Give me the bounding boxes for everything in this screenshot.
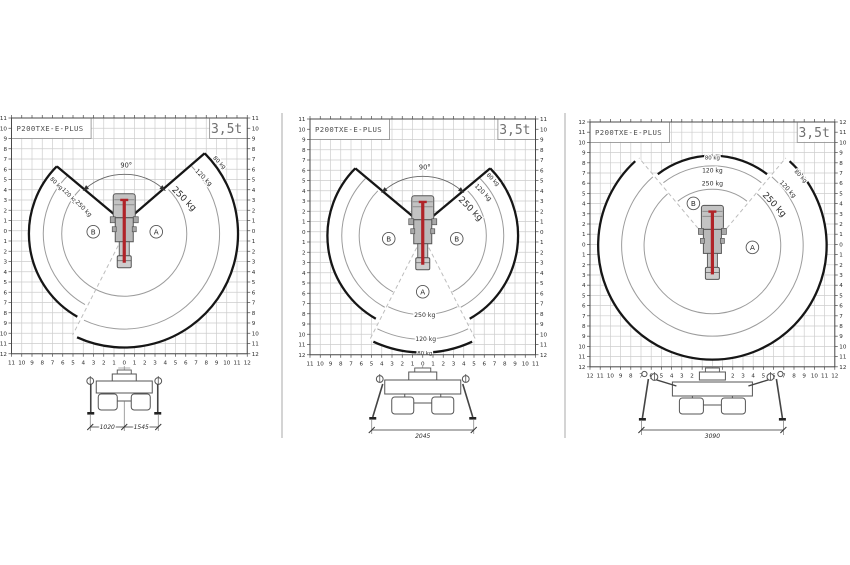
y-axis-tick-label-left: 6	[582, 304, 586, 310]
wheel	[392, 397, 414, 414]
x-axis-tick-label: 4	[163, 360, 167, 366]
y-axis-tick-label-right: 6	[252, 167, 256, 173]
y-axis-tick-label-right: 7	[540, 158, 544, 164]
y-axis-tick-label-left: 5	[3, 280, 7, 286]
y-axis-tick-label-left: 6	[302, 291, 306, 297]
y-axis-tick-label-right: 8	[540, 148, 544, 154]
y-axis-tick-label-left: 0	[582, 242, 586, 248]
x-axis-tick-label: 10	[522, 361, 530, 367]
y-axis-tick-label-left: 5	[302, 281, 306, 287]
y-axis-tick-label-left: 1	[582, 232, 586, 238]
x-axis-tick-label: 5	[660, 373, 664, 379]
zone-letter: A	[420, 287, 425, 296]
weight-badge: 3,5t	[798, 126, 829, 141]
y-axis-tick-label-right: 6	[839, 304, 843, 310]
dimension-label: 1020	[100, 424, 115, 431]
y-axis-tick-label-left: 7	[3, 157, 7, 163]
y-axis-tick-label-left: 4	[302, 271, 306, 277]
capacity-label: 120 kg	[415, 336, 436, 343]
wheel	[679, 398, 703, 414]
y-axis-tick-label-right: 6	[540, 291, 544, 297]
y-axis-tick-label-right: 1	[839, 253, 843, 259]
dimension-label: 1545	[134, 424, 149, 431]
y-axis-tick-label-right: 2	[252, 249, 256, 255]
x-axis-tick-label: 5	[370, 361, 374, 367]
y-axis-tick-label-right: 2	[540, 209, 544, 215]
zone-letter: A	[154, 227, 159, 236]
y-axis-tick-label-right: 3	[839, 212, 843, 218]
capacity-label: 80 kg	[417, 351, 432, 357]
x-axis-tick-label: 12	[244, 360, 251, 366]
y-axis-tick-label-left: 1	[302, 240, 306, 246]
y-axis-tick-label-right: 4	[252, 188, 256, 194]
outrigger-dimension: 3090	[638, 420, 786, 440]
x-axis-tick-label: 10	[607, 373, 615, 379]
y-axis-tick-label-left: 10	[0, 126, 7, 132]
slew-angle-label: 90°	[419, 163, 431, 171]
y-axis-tick-label-right: 10	[252, 331, 260, 337]
chart-title: P200TXE-E-PLUS	[595, 128, 662, 137]
y-axis-tick-label-right: 12	[839, 365, 846, 371]
x-axis-tick-label: 6	[359, 361, 363, 367]
y-axis-tick-label-right: 3	[540, 261, 544, 267]
x-axis-tick-label: 6	[61, 360, 65, 366]
x-axis-tick-label: 2	[400, 361, 404, 367]
y-axis-tick-label-right: 8	[839, 161, 843, 167]
wheel	[98, 394, 117, 410]
x-axis-tick-label: 3	[452, 361, 456, 367]
outrigger-dimension: 2045	[369, 419, 477, 440]
x-axis-tick-label: 6	[482, 361, 486, 367]
y-axis-tick-label-left: 2	[3, 249, 7, 255]
x-axis-tick-label: 2	[441, 361, 445, 367]
y-axis-tick-label-right: 5	[839, 191, 843, 197]
y-axis-tick-label-right: 7	[252, 157, 256, 163]
y-axis-tick-label-right: 8	[252, 147, 256, 153]
y-axis-tick-label-right: 2	[839, 222, 843, 228]
chart-title: P200TXE-E-PLUS	[315, 125, 382, 134]
x-axis-tick-label: 5	[71, 360, 75, 366]
y-axis-tick-label-left: 3	[3, 260, 7, 266]
y-axis-tick-label-right: 2	[252, 208, 256, 214]
y-axis-tick-label-left: 4	[3, 188, 7, 194]
y-axis-tick-label-left: 9	[3, 321, 7, 327]
chart-title: P200TXE-E-PLUS	[17, 124, 84, 133]
weight-badge: 3,5t	[211, 122, 242, 137]
x-axis-tick-label: 4	[462, 361, 466, 367]
y-axis-tick-label-right: 8	[540, 312, 544, 318]
x-axis-tick-label: 11	[597, 373, 605, 379]
x-axis-tick-label: 3	[153, 360, 157, 366]
y-axis-tick-label-right: 8	[839, 324, 843, 330]
x-axis-tick-label: 4	[380, 361, 384, 367]
y-axis-tick-label-left: 9	[302, 322, 306, 328]
y-axis-tick-label-right: 11	[839, 355, 847, 361]
x-axis-tick-label: 9	[215, 360, 219, 366]
x-axis-tick-label: 4	[670, 373, 674, 379]
y-axis-tick-label-right: 5	[252, 280, 256, 286]
y-axis-tick-label-right: 11	[839, 130, 847, 136]
x-axis-tick-label: 5	[174, 360, 178, 366]
y-axis-tick-label-right: 0	[252, 229, 256, 235]
y-axis-tick-label-right: 3	[252, 260, 256, 266]
y-axis-tick-label-left: 10	[298, 332, 306, 338]
y-axis-tick-label-right: 1	[839, 232, 843, 238]
y-axis-tick-label-right: 3	[839, 273, 843, 279]
y-axis-tick-label-left: 11	[0, 116, 7, 122]
y-axis-tick-label-left: 8	[302, 312, 306, 318]
x-axis-tick-label: 10	[317, 361, 325, 367]
y-axis-tick-label-left: 6	[582, 181, 586, 187]
zone-letter: B	[386, 234, 391, 243]
capacity-label: 80 kg	[705, 155, 720, 161]
capacity-label: 120 kg	[702, 167, 723, 174]
y-axis-tick-label-left: 2	[582, 263, 586, 269]
y-axis-tick-label-left: 10	[578, 344, 586, 350]
outreach-diagram-1: 90°80 kg120 kg250 kg80 kg120 kg250 kgBAP…	[0, 0, 283, 565]
x-axis-tick-label: 8	[792, 373, 796, 379]
y-axis-tick-label-left: 11	[0, 342, 7, 348]
y-axis-tick-label-right: 11	[540, 343, 548, 349]
y-axis-tick-label-left: 0	[302, 230, 306, 236]
load-charts-board: 90°80 kg120 kg250 kg80 kg120 kg250 kgBAP…	[0, 0, 850, 565]
y-axis-tick-label-left: 5	[582, 293, 586, 299]
x-axis-tick-label: 7	[493, 361, 497, 367]
y-axis-tick-label-right: 12	[839, 120, 846, 126]
x-axis-tick-label: 10	[223, 360, 231, 366]
y-axis-tick-label-right: 6	[252, 290, 256, 296]
y-axis-tick-label-left: 12	[298, 353, 305, 359]
x-axis-tick-label: 7	[194, 360, 198, 366]
y-axis-tick-label-right: 4	[540, 189, 544, 195]
y-axis-tick-label-right: 0	[540, 230, 544, 236]
y-axis-tick-label-left: 10	[578, 140, 586, 146]
machine-front-view	[369, 366, 476, 420]
y-axis-tick-label-right: 9	[540, 138, 544, 144]
y-axis-tick-label-left: 12	[578, 365, 585, 371]
machine-boom	[421, 203, 424, 265]
y-axis-tick-label-left: 9	[582, 334, 586, 340]
y-axis-tick-label-right: 10	[252, 126, 260, 132]
x-axis-tick-label: 2	[143, 360, 147, 366]
y-axis-tick-label-left: 10	[0, 331, 7, 337]
y-axis-tick-label-left: 12	[0, 352, 7, 358]
y-axis-tick-label-right: 11	[252, 116, 260, 122]
y-axis-tick-label-right: 4	[839, 283, 843, 289]
x-axis-tick-label: 12	[831, 373, 838, 379]
outrigger-leg	[776, 379, 782, 418]
x-axis-tick-label: 2	[731, 373, 735, 379]
y-axis-tick-label-left: 2	[3, 208, 7, 214]
y-axis-tick-label-right: 3	[540, 199, 544, 205]
y-axis-tick-label-left: 11	[578, 355, 586, 361]
x-axis-tick-label: 7	[349, 361, 353, 367]
y-axis-tick-label-right: 2	[839, 263, 843, 269]
y-axis-tick-label-right: 5	[540, 281, 544, 287]
x-axis-tick-label: 4	[751, 373, 755, 379]
y-axis-tick-label-left: 4	[582, 202, 586, 208]
x-axis-tick-label: 6	[184, 360, 188, 366]
y-axis-tick-label-right: 4	[540, 271, 544, 277]
x-axis-tick-label: 2	[690, 373, 694, 379]
x-axis-tick-label: 5	[762, 373, 766, 379]
y-axis-tick-label-right: 9	[540, 322, 544, 328]
y-axis-tick-label-right: 5	[839, 293, 843, 299]
y-axis-tick-label-left: 7	[302, 302, 306, 308]
y-axis-tick-label-left: 5	[582, 191, 586, 197]
y-axis-tick-label-right: 4	[252, 270, 256, 276]
y-axis-tick-label-left: 2	[582, 222, 586, 228]
y-axis-tick-label-left: 4	[3, 270, 7, 276]
y-axis-tick-label-right: 10	[839, 140, 847, 146]
x-axis-tick-label: 2	[102, 360, 106, 366]
machine-boom	[711, 212, 714, 274]
x-axis-tick-label: 8	[204, 360, 208, 366]
x-axis-tick-label: 11	[8, 360, 16, 366]
x-axis-tick-label: 11	[306, 361, 314, 367]
capacity-labels-horizontal: 80 kg120 kg250 kg	[702, 155, 723, 187]
y-axis-tick-label-right: 7	[839, 314, 843, 320]
y-axis-tick-label-left: 1	[3, 219, 7, 225]
y-axis-tick-label-right: 10	[540, 127, 548, 133]
outrigger-leg	[642, 379, 648, 418]
y-axis-tick-label-right: 7	[540, 302, 544, 308]
y-axis-tick-label-left: 11	[298, 117, 306, 123]
x-axis-tick-label: 1	[411, 361, 415, 367]
zone-letter: B	[691, 199, 696, 208]
y-axis-tick-label-left: 2	[302, 209, 306, 215]
x-axis-tick-label: 9	[802, 373, 806, 379]
x-axis-tick-label: 7	[51, 360, 55, 366]
y-axis-tick-label-right: 6	[839, 181, 843, 187]
x-axis-tick-label: 11	[821, 373, 829, 379]
y-axis-tick-label-left: 2	[302, 250, 306, 256]
outrigger-leg	[463, 384, 473, 417]
y-axis-tick-label-right: 8	[252, 311, 256, 317]
zone-letter: B	[454, 234, 459, 243]
outreach-diagram-2: 90°80 kg120 kg250 kg250 kg120 kg80 kgBBA…	[283, 0, 566, 565]
wheel	[721, 398, 745, 414]
load-chart-panel-3: 80 kg120 kg250 kg80 kg120 kg250 kgBAP200…	[566, 0, 850, 565]
y-axis-tick-label-right: 5	[540, 179, 544, 185]
y-axis-tick-label-left: 8	[582, 161, 586, 167]
x-axis-tick-label: 1	[133, 360, 137, 366]
x-axis-tick-label: 3	[92, 360, 96, 366]
y-axis-tick-label-right: 10	[540, 332, 548, 338]
y-axis-tick-label-left: 9	[302, 138, 306, 144]
x-axis-tick-label: 9	[30, 360, 34, 366]
y-axis-tick-label-left: 3	[582, 273, 586, 279]
y-axis-tick-label-right: 1	[540, 220, 544, 226]
slew-angle-label: 90°	[120, 161, 132, 169]
outrigger-leg	[373, 384, 383, 417]
x-axis-tick-label: 8	[629, 373, 633, 379]
y-axis-tick-label-right: 12	[252, 352, 259, 358]
y-axis-tick-label-left: 10	[298, 127, 306, 133]
y-axis-tick-label-right: 9	[839, 334, 843, 340]
y-axis-tick-label-left: 6	[302, 168, 306, 174]
y-axis-tick-label-left: 5	[302, 179, 306, 185]
x-axis-tick-label: 10	[811, 373, 819, 379]
y-axis-tick-label-left: 6	[3, 167, 7, 173]
y-axis-tick-label-left: 1	[582, 253, 586, 259]
y-axis-tick-label-right: 12	[540, 353, 547, 359]
x-axis-tick-label: 11	[532, 361, 540, 367]
y-axis-tick-label-right: 7	[839, 171, 843, 177]
y-axis-tick-label-right: 11	[252, 342, 260, 348]
dimension-label: 2045	[415, 433, 430, 440]
y-axis-tick-label-right: 6	[540, 168, 544, 174]
wheel	[131, 394, 150, 410]
y-axis-tick-label-right: 3	[252, 198, 256, 204]
x-axis-tick-label: 1	[431, 361, 435, 367]
y-axis-tick-label-right: 11	[540, 117, 548, 123]
y-axis-tick-label-right: 2	[540, 250, 544, 256]
y-axis-tick-label-left: 7	[3, 301, 7, 307]
y-axis-tick-label-left: 5	[3, 178, 7, 184]
y-axis-tick-label-left: 3	[582, 212, 586, 218]
y-axis-tick-label-left: 3	[3, 198, 7, 204]
dimension-label: 3090	[705, 433, 720, 440]
y-axis-tick-label-left: 9	[582, 151, 586, 157]
y-axis-tick-label-left: 11	[578, 130, 586, 136]
x-axis-tick-label: 9	[329, 361, 333, 367]
x-axis-tick-label: 9	[619, 373, 623, 379]
x-axis-tick-label: 3	[680, 373, 684, 379]
y-axis-tick-label-right: 9	[252, 137, 256, 143]
x-axis-tick-label: 8	[40, 360, 44, 366]
y-axis-tick-label-right: 10	[839, 344, 847, 350]
x-axis-tick-label: 3	[741, 373, 745, 379]
x-axis-tick-label: 10	[18, 360, 26, 366]
y-axis-tick-label-left: 9	[3, 137, 7, 143]
x-axis-tick-label: 5	[472, 361, 476, 367]
weight-badge: 3,5t	[499, 123, 530, 138]
y-axis-tick-label-right: 0	[839, 242, 843, 248]
y-axis-tick-label-right: 7	[252, 301, 256, 307]
y-axis-tick-label-left: 11	[298, 343, 306, 349]
y-axis-tick-label-left: 1	[3, 239, 7, 245]
machine-boom	[123, 201, 126, 263]
y-axis-tick-label-right: 1	[252, 239, 256, 245]
x-axis-tick-label: 8	[503, 361, 507, 367]
y-axis-tick-label-left: 4	[302, 189, 306, 195]
x-axis-tick-label: 8	[339, 361, 343, 367]
zone-letter: A	[750, 243, 755, 252]
y-axis-tick-label-left: 7	[302, 158, 306, 164]
y-axis-tick-label-left: 8	[582, 324, 586, 330]
y-axis-tick-label-right: 4	[839, 202, 843, 208]
y-axis-tick-label-right: 1	[540, 240, 544, 246]
x-axis-tick-label: 1	[112, 360, 116, 366]
outreach-diagram-3: 80 kg120 kg250 kg80 kg120 kg250 kgBAP200…	[566, 0, 850, 565]
y-axis-tick-label-left: 8	[3, 311, 7, 317]
y-axis-tick-label-left: 3	[302, 199, 306, 205]
load-chart-panel-2: 90°80 kg120 kg250 kg250 kg120 kg80 kgBBA…	[283, 0, 566, 565]
y-axis-tick-label-left: 12	[578, 120, 585, 126]
capacity-label: 250 kg	[702, 180, 723, 187]
load-chart-panel-1: 90°80 kg120 kg250 kg80 kg120 kg250 kgBAP…	[0, 0, 283, 565]
y-axis-tick-label-left: 6	[3, 290, 7, 296]
y-axis-tick-label-right: 5	[252, 178, 256, 184]
zone-letter: B	[91, 227, 96, 236]
x-axis-tick-label: 3	[390, 361, 394, 367]
y-axis-tick-label-left: 3	[302, 261, 306, 267]
y-axis-tick-label-left: 4	[582, 283, 586, 289]
x-axis-tick-label: 11	[233, 360, 241, 366]
y-axis-tick-label-left: 1	[302, 220, 306, 226]
y-axis-tick-label-right: 9	[252, 321, 256, 327]
y-axis-tick-label-left: 0	[3, 229, 7, 235]
y-axis-tick-label-right: 1	[252, 219, 256, 225]
y-axis-tick-label-left: 7	[582, 171, 586, 177]
x-axis-tick-label: 12	[586, 373, 593, 379]
y-axis-tick-label-left: 8	[3, 147, 7, 153]
y-axis-tick-label-left: 8	[302, 148, 306, 154]
wheel	[432, 397, 454, 414]
x-axis-tick-label: 9	[513, 361, 517, 367]
y-axis-tick-label-left: 7	[582, 314, 586, 320]
x-axis-tick-label: 4	[81, 360, 85, 366]
y-axis-tick-label-right: 9	[839, 151, 843, 157]
capacity-label: 250 kg	[414, 312, 435, 319]
x-axis-tick-label: 0	[122, 360, 126, 366]
